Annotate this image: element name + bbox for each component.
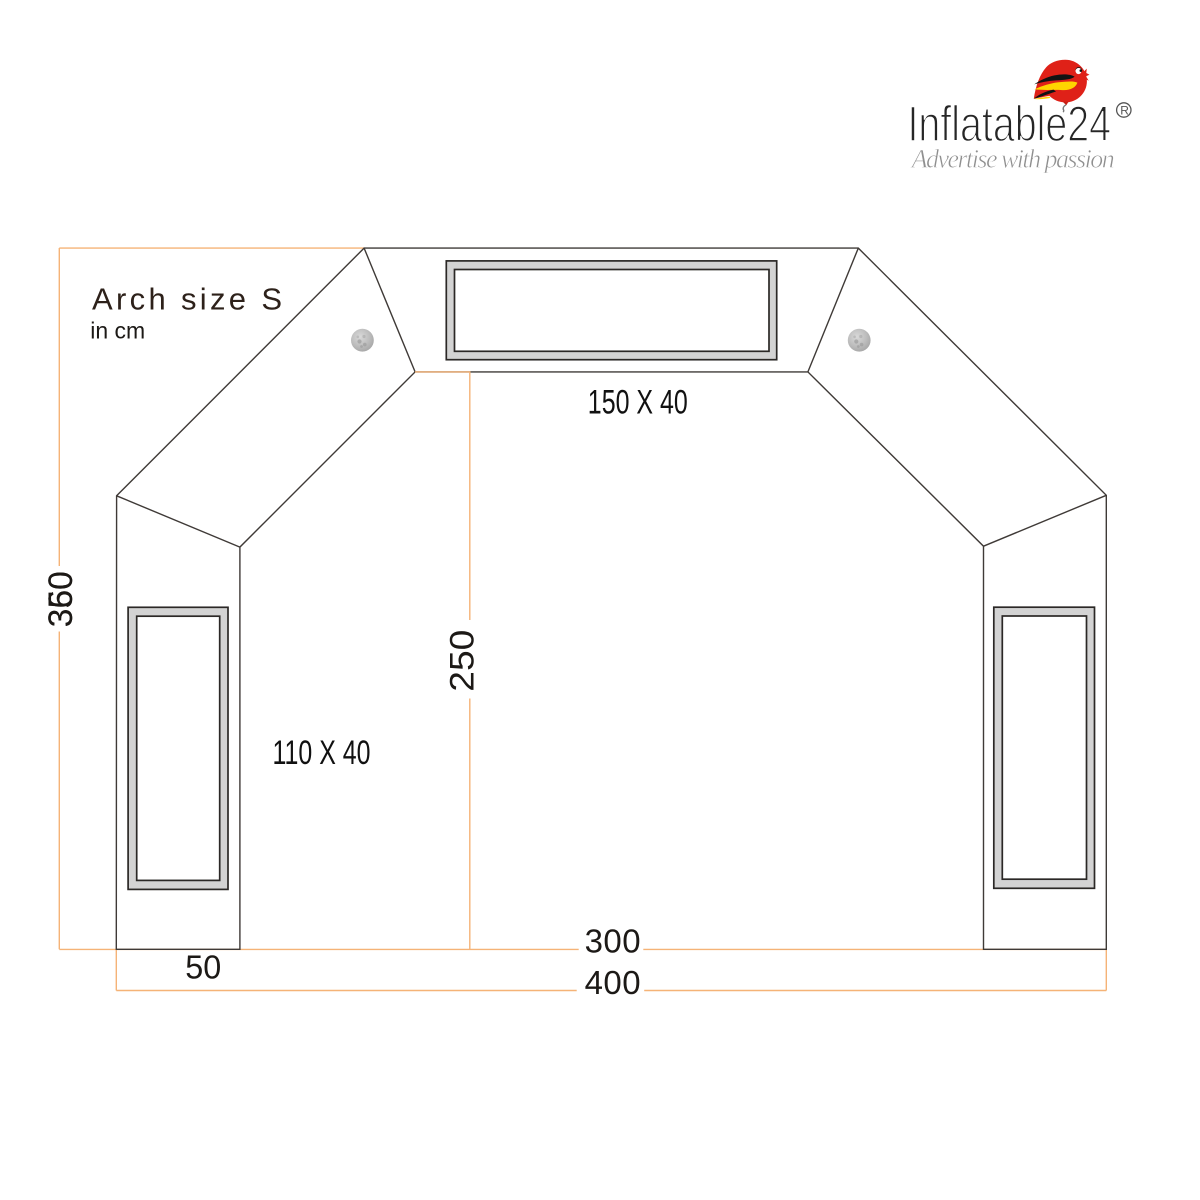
svg-text:R: R — [1120, 103, 1129, 117]
svg-text:300: 300 — [585, 923, 641, 960]
svg-text:400: 400 — [585, 964, 641, 1001]
svg-text:110 X 40: 110 X 40 — [273, 734, 371, 772]
svg-text:150 X 40: 150 X 40 — [588, 383, 688, 421]
svg-text:50: 50 — [185, 949, 221, 986]
svg-text:Advertise with passion: Advertise with passion — [910, 145, 1115, 174]
svg-text:360: 360 — [42, 571, 80, 627]
svg-text:Arch size S: Arch size S — [92, 282, 282, 317]
svg-text:250: 250 — [443, 630, 481, 692]
svg-text:in cm: in cm — [90, 318, 145, 344]
